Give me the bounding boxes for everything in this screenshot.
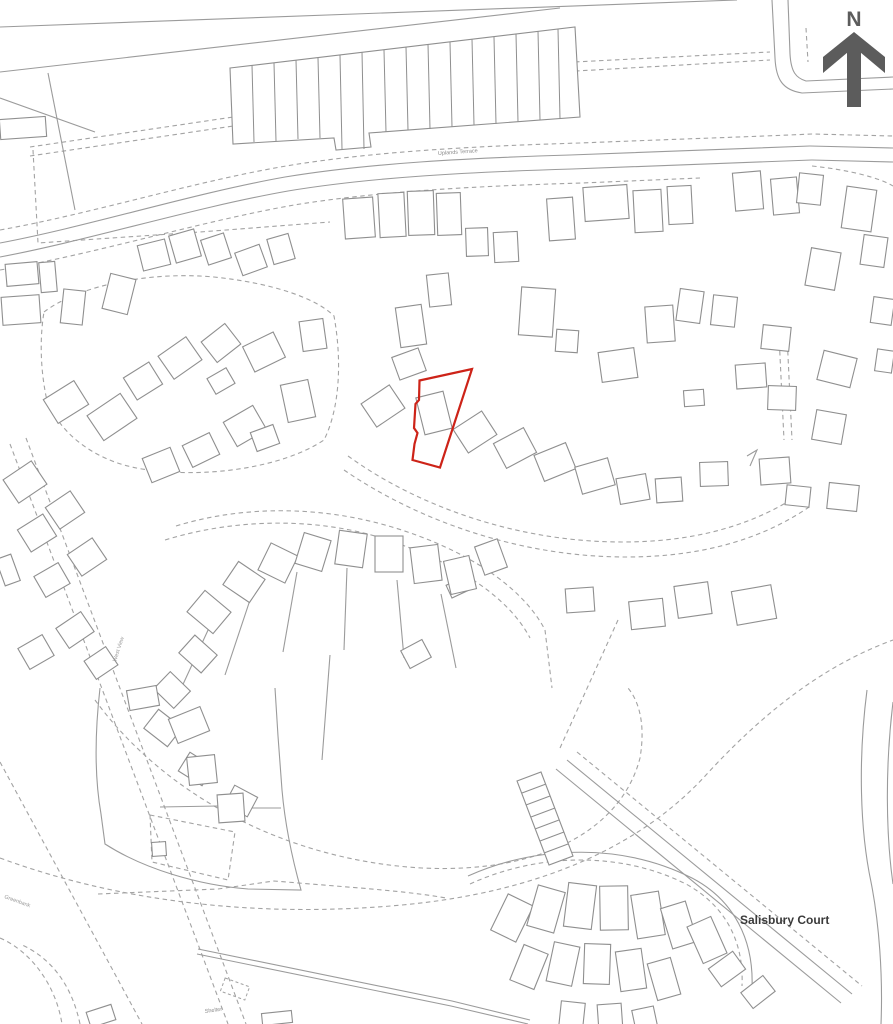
boundary-line <box>322 655 330 760</box>
building-outline <box>575 458 615 494</box>
building-outline <box>18 635 54 670</box>
building-outline <box>261 1010 292 1024</box>
building-outline <box>123 362 162 400</box>
building-outline <box>741 976 775 1009</box>
building-outline <box>87 393 137 440</box>
boundary-line <box>225 594 252 675</box>
building-outline <box>217 793 245 823</box>
building-outline <box>493 231 519 262</box>
building-outline <box>655 477 683 503</box>
building-outline <box>436 193 461 236</box>
building-outline <box>137 239 170 271</box>
site-plan-page: Uplands TerraceSalisbury CourtShelterWes… <box>0 0 893 1024</box>
building-outline <box>527 885 565 933</box>
building-outline <box>700 462 729 487</box>
building-outline <box>583 944 610 985</box>
building-outline <box>466 228 489 257</box>
building-outline <box>600 886 629 930</box>
building-outline <box>632 1006 659 1024</box>
building-outline <box>126 686 159 711</box>
building-outline <box>86 1004 116 1024</box>
building-outline <box>407 191 435 236</box>
street-label-greenbank: Greenbank <box>3 894 31 909</box>
building-outline <box>583 185 629 222</box>
building-outline <box>597 1003 623 1024</box>
building-outline <box>555 329 578 352</box>
building-outline <box>258 543 298 583</box>
building-outline <box>563 882 596 929</box>
boundary-dashed-line <box>560 620 618 748</box>
terrace-block-outline <box>230 27 580 150</box>
building-outline <box>187 755 218 786</box>
building-outline <box>39 261 58 292</box>
building-outline <box>361 385 405 427</box>
boundary-line <box>344 568 347 650</box>
building-outline <box>102 273 136 314</box>
building-outline <box>647 957 681 1000</box>
buildings-layer <box>0 116 893 1024</box>
building-outline <box>732 171 763 211</box>
building-outline <box>875 349 893 373</box>
building-outline <box>559 1001 586 1024</box>
building-outline <box>546 942 580 987</box>
building-outline <box>1 295 41 326</box>
boundary-line <box>283 572 297 652</box>
building-outline <box>187 590 231 633</box>
building-outline <box>796 173 823 205</box>
building-outline <box>84 647 118 680</box>
building-outline <box>534 443 576 482</box>
boundary-line <box>0 0 737 27</box>
building-outline <box>0 554 20 586</box>
building-outline <box>598 348 638 383</box>
stepped-terrace-outline <box>517 772 573 865</box>
building-outline <box>493 428 536 469</box>
building-outline <box>633 189 663 232</box>
boundary-dashed-line <box>812 166 893 186</box>
building-outline <box>401 640 432 669</box>
building-outline <box>547 197 576 241</box>
building-outline <box>645 305 675 343</box>
building-outline <box>56 612 94 649</box>
boundary-line <box>198 949 530 1020</box>
building-outline <box>565 587 595 613</box>
building-outline <box>841 186 877 232</box>
building-outline <box>631 891 666 939</box>
building-outline <box>416 391 452 435</box>
boundary-line <box>861 690 881 1024</box>
building-outline <box>243 332 286 372</box>
building-outline <box>475 539 508 575</box>
building-outline <box>152 842 167 857</box>
building-outline <box>5 262 39 287</box>
building-outline <box>201 233 232 265</box>
shelter-label: Shelter <box>204 1007 222 1015</box>
north-arrow-letter: N <box>846 8 861 31</box>
building-outline <box>759 457 791 485</box>
boundary-dashed-line <box>806 28 808 62</box>
building-outline <box>676 288 704 323</box>
building-outline <box>280 380 315 423</box>
building-outline <box>299 318 327 351</box>
boundary-line <box>197 954 528 1024</box>
building-outline <box>817 350 857 387</box>
building-outline <box>426 273 451 307</box>
building-outline <box>17 514 56 552</box>
building-outline <box>267 233 295 264</box>
building-outline <box>335 530 367 568</box>
building-outline <box>735 363 767 389</box>
boundary-line <box>441 594 456 668</box>
building-outline <box>378 192 406 237</box>
building-outline <box>812 410 847 445</box>
building-outline <box>201 324 241 363</box>
north-arrow-stem <box>847 45 861 107</box>
building-outline <box>0 116 47 139</box>
building-outline <box>615 948 646 991</box>
building-outline <box>182 433 219 468</box>
building-outline <box>768 386 797 411</box>
building-outline <box>710 295 737 327</box>
boundary-line <box>788 0 893 81</box>
building-outline <box>207 368 235 395</box>
site-plan-map: Uplands TerraceSalisbury CourtShelterWes… <box>0 0 893 1024</box>
boundary-line <box>887 702 893 884</box>
building-outline <box>667 185 693 224</box>
building-outline <box>142 447 180 482</box>
building-outline <box>761 325 791 352</box>
boundary-line <box>747 450 757 466</box>
building-outline <box>683 389 704 406</box>
shelter-outline <box>220 978 249 1000</box>
building-outline <box>453 411 497 453</box>
building-outline <box>785 485 811 507</box>
building-outline <box>295 533 331 572</box>
building-outline <box>67 538 106 576</box>
building-outline <box>395 304 426 347</box>
building-outline <box>375 536 403 572</box>
building-outline <box>629 598 666 629</box>
building-outline <box>235 244 268 275</box>
building-outline <box>3 461 47 503</box>
boundary-line <box>160 806 218 807</box>
building-outline <box>805 248 841 291</box>
street-label-west-view: West View <box>112 636 126 662</box>
building-outline <box>770 177 799 215</box>
building-outline <box>34 563 70 598</box>
boundary-dashed-line <box>344 470 812 557</box>
building-outline <box>518 287 555 337</box>
boundary-dashed-line <box>545 630 552 688</box>
building-outline <box>343 197 376 239</box>
boundary-dashed-line <box>0 938 62 1024</box>
building-outline <box>510 945 548 990</box>
building-outline <box>491 894 534 942</box>
building-outline <box>60 289 85 325</box>
building-outline <box>674 582 712 618</box>
boundary-line <box>397 580 404 658</box>
building-outline <box>169 229 202 263</box>
building-outline <box>687 916 727 963</box>
building-outline <box>43 381 88 424</box>
boundary-dashed-line <box>0 762 142 1024</box>
salisbury-court-label: Salisbury Court <box>740 913 829 927</box>
building-outline <box>860 234 888 267</box>
building-outline <box>45 491 84 529</box>
building-outline <box>870 297 893 326</box>
building-outline <box>827 483 860 512</box>
building-outline <box>410 544 442 583</box>
building-outline <box>392 348 427 380</box>
building-outline <box>731 585 776 625</box>
building-outline <box>179 635 217 673</box>
boundary-dashed-line <box>20 944 80 1024</box>
building-outline <box>158 337 202 379</box>
building-outline <box>616 474 650 505</box>
